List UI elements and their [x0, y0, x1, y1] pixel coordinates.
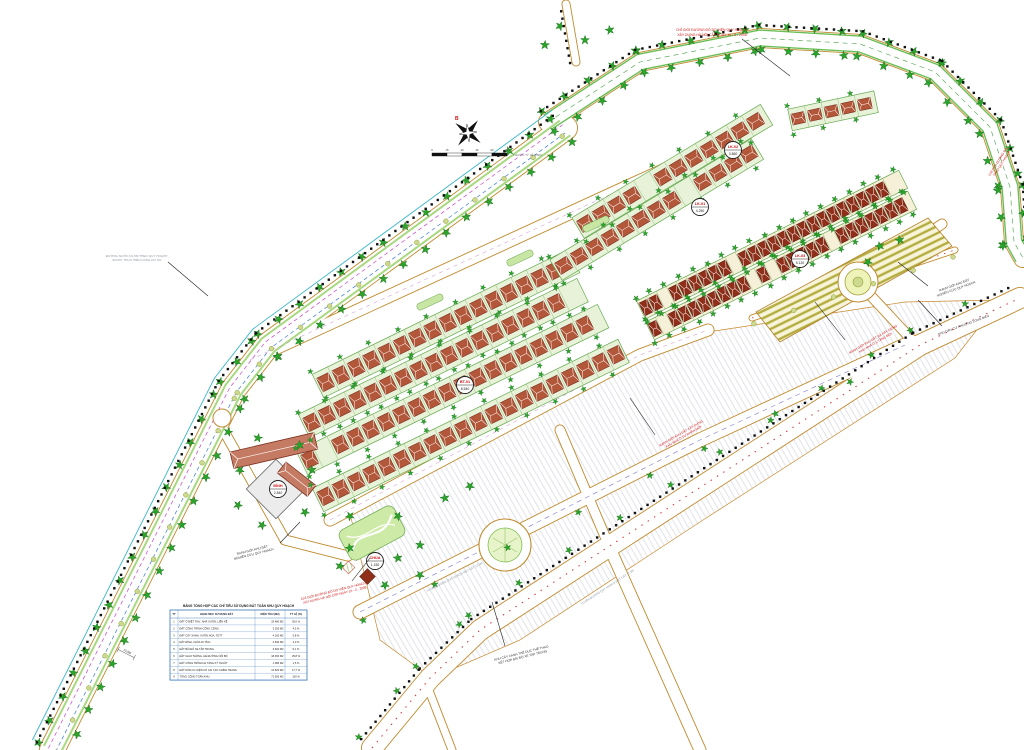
boundary-dot: [825, 28, 827, 30]
boundary-dot: [483, 610, 485, 612]
boundary-dot: [364, 252, 366, 254]
boundary-dot: [76, 661, 78, 663]
boundary-dot: [823, 389, 825, 391]
boundary-dot: [69, 674, 71, 676]
road-surface: [612, 553, 700, 750]
boundary-dot: [157, 500, 159, 502]
boundary-dot: [672, 487, 674, 489]
tree-icon: [718, 251, 725, 258]
legend-cell: 17,7 %: [292, 668, 301, 672]
boundary-dot: [1007, 287, 1009, 289]
annotation-study-boundary-right: RANH GIỚI KHU ĐẤT NGHIÊN CỨU QUY HOẠCH: [934, 275, 976, 298]
tree-icon: [232, 499, 244, 511]
boundary-dot: [810, 398, 812, 400]
legend-cell: 1.080 M2: [273, 661, 284, 665]
boundary-dot: [273, 318, 275, 320]
block-code: BT-01: [460, 380, 470, 384]
housing-strip: [788, 91, 879, 131]
boundary-dot: [760, 430, 762, 432]
boundary-dot: [451, 636, 453, 638]
shrub-icon: [911, 268, 916, 273]
boundary-dot: [966, 306, 968, 308]
boundary-dot: [245, 344, 247, 346]
shrub-icon: [327, 304, 332, 309]
boundary-dot: [994, 113, 996, 115]
shrub-icon: [502, 176, 507, 181]
boundary-dot: [431, 203, 433, 205]
boundary-dot: [766, 426, 768, 428]
boundary-dot: [521, 137, 523, 139]
tree-icon: [365, 453, 372, 460]
boundary-dot: [946, 65, 948, 67]
svg-text:RANH GIỚI KHU ĐẤT NGHI: RANH GIỚI KHU ĐẤT NGHIÊN CỨU QUY HOẠCH: [934, 275, 976, 298]
boundary-dot: [890, 41, 892, 43]
boundary-dot: [566, 47, 568, 49]
block-stamp: BT-018.640: [457, 377, 474, 394]
boundary-dot: [1002, 126, 1004, 128]
boundary-dot: [110, 594, 112, 596]
boundary-dot: [479, 168, 481, 170]
boundary-dot: [772, 422, 774, 424]
boundary-dot: [467, 177, 469, 179]
shrub-icon: [86, 686, 91, 691]
legend-cell: 12.620 M2: [271, 668, 284, 672]
boundary-dot: [810, 27, 812, 29]
boundary-dot: [443, 194, 445, 196]
boundary-dot: [560, 10, 562, 12]
legend-cell: 5,1 %: [293, 647, 300, 651]
boundary-dot: [835, 381, 837, 383]
block-code: CHÙA: [370, 555, 381, 560]
boundary-dot: [590, 77, 592, 79]
block-stamp: ĐÌNH2.840: [270, 481, 287, 498]
boundary-dot: [728, 451, 730, 453]
boundary-dot: [370, 726, 372, 728]
boundary-dot: [384, 709, 386, 711]
legend-cell: 3.250 M2: [273, 626, 284, 630]
boundary-dot: [227, 368, 229, 370]
tree-icon: [336, 561, 345, 570]
boundary-dot: [360, 738, 362, 740]
boundary-dot: [780, 25, 782, 27]
legend-cell: 3.620 M2: [273, 647, 284, 651]
boundary-dot: [147, 520, 149, 522]
boundary-dot: [848, 29, 850, 31]
shrub-icon: [232, 396, 237, 401]
tree-icon: [820, 124, 826, 131]
boundary-dot: [123, 567, 125, 569]
legend-cell: 4.160 M2: [273, 633, 284, 637]
boundary-dot: [722, 455, 724, 457]
boundary-dot: [788, 26, 790, 28]
tree-icon: [746, 237, 753, 244]
boundary-dot: [394, 230, 396, 232]
boundary-dot: [569, 62, 571, 64]
boundary-dot: [79, 654, 81, 656]
pagoda-yard: [342, 561, 355, 574]
boundary-dot: [840, 29, 842, 31]
shrub-icon: [103, 653, 108, 658]
shrub-icon: [791, 308, 796, 313]
boundary-dot: [533, 128, 535, 130]
boundary-dot: [833, 28, 835, 30]
block-area: 2.840: [274, 491, 283, 495]
boundary-dot: [365, 732, 367, 734]
boundary-dot: [73, 667, 75, 669]
boundary-dot: [848, 373, 850, 375]
scale-label: 45: [475, 148, 479, 152]
boundary-dot: [137, 540, 139, 542]
shrub-icon: [167, 525, 172, 530]
boundary-dot: [697, 471, 699, 473]
boundary-dot: [621, 520, 623, 522]
boundary-dot: [489, 606, 491, 608]
boundary-dot: [352, 261, 354, 263]
boundary-dot: [413, 674, 415, 676]
boundary-dot: [634, 49, 636, 51]
boundary-dot: [194, 426, 196, 428]
boundary-dot: [346, 265, 348, 267]
boundary-dot: [758, 24, 760, 26]
boundary-dot: [596, 536, 598, 538]
boundary-dot: [370, 247, 372, 249]
boundary-dot: [461, 181, 463, 183]
tree-icon: [508, 270, 514, 276]
tree-icon: [581, 35, 590, 44]
boundary-dot: [398, 692, 400, 694]
shrub-icon: [200, 460, 205, 465]
boundary-dot: [440, 647, 442, 649]
boundary-dot: [603, 69, 605, 71]
roundabout-main: [479, 519, 531, 571]
boundary-dot: [130, 554, 132, 556]
boundary-dot: [973, 303, 975, 305]
road-dimension: 13,5M: [117, 646, 136, 661]
boundary-dot: [678, 483, 680, 485]
boundary-dot: [231, 362, 233, 364]
boundary-dot: [897, 43, 899, 45]
boundary-dot: [495, 602, 497, 604]
boundary-dot: [100, 614, 102, 616]
boundary-dot: [207, 399, 209, 401]
boundary-dot: [191, 433, 193, 435]
boundary-dot: [388, 234, 390, 236]
tree-icon: [253, 433, 263, 443]
boundary-dot: [527, 581, 529, 583]
boundary-dot: [160, 493, 162, 495]
boundary-dot: [716, 459, 718, 461]
boundary-dot: [408, 680, 410, 682]
boundary-dot: [133, 547, 135, 549]
boundary-dot: [539, 124, 541, 126]
boundary-dot: [437, 199, 439, 201]
boundary-dot: [412, 216, 414, 218]
boundary-dot: [376, 243, 378, 245]
boundary-dot: [841, 377, 843, 379]
boundary-dot: [912, 332, 914, 334]
boundary-dot: [967, 86, 969, 88]
shrub-icon: [831, 295, 836, 300]
boundary-dot: [641, 47, 643, 49]
boundary-dot: [785, 414, 787, 416]
boundary-dot: [602, 532, 604, 534]
boundary-dot: [222, 374, 224, 376]
boundary-dot: [791, 410, 793, 412]
boundary-dot: [90, 634, 92, 636]
boundary-dot: [96, 621, 98, 623]
boundary-dot: [983, 102, 985, 104]
boundary-dot: [164, 487, 166, 489]
boundary-dot: [987, 296, 989, 298]
boundary-dot: [939, 59, 941, 61]
boundary-dot: [297, 301, 299, 303]
boundary-dot: [690, 475, 692, 477]
boundary-dot: [456, 631, 458, 633]
boundary-dot: [334, 274, 336, 276]
boundary-dot: [646, 504, 648, 506]
boundary-dot: [328, 278, 330, 280]
boundary-dot: [565, 40, 567, 42]
tree-icon: [539, 256, 545, 262]
shrub-icon: [70, 718, 75, 723]
boundary-dot: [829, 385, 831, 387]
median-green: [416, 293, 444, 311]
shrub-icon: [298, 325, 303, 330]
shrub-icon: [560, 134, 565, 139]
boundary-dot: [665, 491, 667, 493]
boundary-dot: [615, 61, 617, 63]
boundary-dot: [621, 57, 623, 59]
boundary-dot: [563, 25, 565, 27]
boundary-dot: [66, 681, 68, 683]
tree-icon: [897, 219, 903, 225]
block-area: 4.250: [696, 209, 705, 213]
boundary-dot: [911, 49, 913, 51]
scale-label: 15: [445, 148, 449, 152]
boundary-dot: [303, 296, 305, 298]
block-stamp: CHÙA1.150: [367, 553, 384, 570]
boundary-dot: [946, 316, 948, 318]
boundary-dot: [649, 46, 651, 48]
boundary-dot: [904, 46, 906, 48]
shrub-icon: [444, 219, 449, 224]
boundary-dot: [559, 98, 561, 100]
boundary-dot: [904, 336, 906, 338]
boundary-dot: [546, 106, 548, 108]
shrub-icon: [871, 281, 876, 286]
boundary-dot: [584, 81, 586, 83]
shrub-icon: [356, 282, 361, 287]
boundary-dot: [1009, 147, 1011, 149]
tree-icon: [790, 131, 798, 139]
boundary-dot: [869, 33, 871, 35]
boundary-dot: [941, 60, 943, 62]
boundary-dot: [773, 25, 775, 27]
boundary-dot: [867, 361, 869, 363]
legend-cell: 71.500 M2: [271, 675, 284, 679]
tree-icon: [731, 244, 739, 251]
boundary-dot: [925, 54, 927, 56]
shrub-icon: [414, 240, 419, 245]
block-stamp: LK-035.120: [792, 251, 809, 268]
boundary-dot: [883, 38, 885, 40]
svg-text:RANH GIỚI KHU ĐẤT NGHI: RANH GIỚI KHU ĐẤT NGHIÊN CỨU QUY HOẠCH: [232, 542, 274, 561]
annotation-red-line-bottom: CHỈ GIỚI ĐƯỜNG ĐỎ DO VIỆN QUY HOẠCH XÂY …: [300, 580, 368, 605]
boundary-dot: [685, 38, 687, 40]
scale-label: 75m: [504, 148, 510, 152]
boundary-dot: [892, 345, 894, 347]
boundary-dot: [419, 667, 421, 669]
boundary-dot: [615, 524, 617, 526]
block-stamp: LK-023.860: [725, 142, 742, 159]
boundary-dot: [291, 305, 293, 307]
boundary-dot: [1014, 162, 1016, 164]
boundary-dot: [49, 714, 51, 716]
boundary-dot: [424, 208, 426, 210]
tree-icon: [604, 24, 616, 36]
boundary-dot: [653, 500, 655, 502]
boundary-dot: [116, 580, 118, 582]
tree-icon: [540, 40, 551, 51]
boundary-dot: [540, 110, 542, 112]
legend-cell: 4,0 %: [293, 640, 300, 644]
boundary-dot: [703, 467, 705, 469]
boundary-dot: [568, 54, 570, 56]
svg-text:ĐƯỜNG NƯỚC D1,5M THEO QUY HOẠC: ĐƯỜNG NƯỚC D1,5M THEO QUY HOẠCH ĐƯỢC THỰ…: [106, 253, 169, 262]
boundary-dot: [309, 292, 311, 294]
boundary-dot: [140, 533, 142, 535]
boundary-dot: [379, 715, 381, 717]
boundary-dot: [709, 463, 711, 465]
boundary-dot: [93, 627, 95, 629]
boundary-dot: [418, 212, 420, 214]
boundary-dot: [211, 393, 213, 395]
shrub-icon: [235, 390, 240, 395]
road-surface: [428, 688, 452, 750]
legend-cell: 2.840 M2: [273, 640, 284, 644]
boundary-dot: [204, 406, 206, 408]
boundary-dot: [1019, 176, 1021, 178]
boundary-dot: [167, 480, 169, 482]
scale-label: 60: [490, 148, 494, 152]
boundary-dot: [1007, 140, 1009, 142]
boundary-dot: [779, 418, 781, 420]
tree-icon: [365, 446, 371, 452]
boundary-dot: [187, 440, 189, 442]
shrub-icon: [216, 428, 221, 433]
legend-cell: 18.450 M2: [271, 654, 284, 658]
boundary-dot: [816, 394, 818, 396]
block-area: 1.150: [371, 563, 380, 567]
boundary-dot: [962, 81, 964, 83]
boundary-dot: [552, 102, 554, 104]
site-plan-canvas: LK-014.250LK-023.860LK-035.120BT-018.640…: [0, 0, 1024, 750]
boundary-dot: [973, 92, 975, 94]
tree-icon: [860, 180, 867, 187]
boundary-dot: [374, 721, 376, 723]
boundary-dot: [693, 37, 695, 39]
boundary-dot: [170, 473, 172, 475]
boundary-dot: [919, 328, 921, 330]
boundary-dot: [571, 89, 573, 91]
boundary-dot: [795, 26, 797, 28]
boundary-dot: [120, 574, 122, 576]
boundary-dot: [279, 314, 281, 316]
boundary-dot: [747, 438, 749, 440]
boundary-dot: [36, 741, 38, 743]
tree-icon: [299, 506, 311, 518]
legend-table: BẢNG TỔNG HỢP CÁC CHỈ TIÊU SỬ DỤNG ĐẤT T…: [170, 603, 307, 680]
annotation-water-line: ĐƯỜNG NƯỚC D1,5M THEO QUY HOẠCH ĐƯỢC THỰ…: [106, 253, 169, 262]
boundary-dot: [565, 94, 567, 96]
boundary-dot: [403, 686, 405, 688]
boundary-dot: [918, 51, 920, 53]
boundary-dot: [181, 453, 183, 455]
boundary-dot: [873, 357, 875, 359]
median-green: [506, 249, 534, 267]
legend-cell: 25,8 %: [292, 654, 301, 658]
boundary-dot: [424, 662, 426, 664]
boundary-dot: [429, 657, 431, 659]
boundary-dot: [358, 256, 360, 258]
compass-north-label: B: [455, 116, 459, 122]
annotation-red-line-top: CHỈ GIỚI ĐƯỜNG ĐỎ DO VIỆN QUY HOẠCH XÂY …: [676, 27, 748, 37]
boundary-dot: [577, 85, 579, 87]
boundary-dot: [267, 323, 269, 325]
scale-label: 0: [431, 148, 433, 152]
boundary-dot: [590, 540, 592, 542]
shrub-icon: [269, 346, 274, 351]
boundary-dot: [656, 44, 658, 46]
boundary-dot: [214, 386, 216, 388]
boundary-dot: [533, 577, 535, 579]
boundary-dot: [932, 56, 934, 58]
boundary-dot: [174, 466, 176, 468]
roundabout-west: [213, 409, 231, 427]
scale-caption: THƯỚC TỶ LỆ 1/500: [513, 152, 542, 157]
shrub-icon: [119, 621, 124, 626]
boundary-dot: [804, 402, 806, 404]
boundary-dot: [63, 688, 65, 690]
scale-segment: [492, 153, 507, 156]
boundary-dot: [609, 65, 611, 67]
boundary-dot: [39, 734, 41, 736]
boundary-dot: [59, 694, 61, 696]
boundary-dot: [435, 652, 437, 654]
boundary-dot: [546, 569, 548, 571]
boundary-dot: [240, 350, 242, 352]
shrub-icon: [951, 255, 956, 260]
boundary-dot: [753, 434, 755, 436]
block-code: ĐÌNH: [273, 483, 283, 488]
shrub-icon: [385, 261, 390, 266]
block-area: 3.860: [729, 152, 738, 156]
boundary-dot: [103, 607, 105, 609]
boundary-dot: [797, 406, 799, 408]
boundary-dot: [855, 30, 857, 32]
boundary-dot: [552, 115, 554, 117]
boundary-dot: [577, 549, 579, 551]
boundary-dot: [315, 287, 317, 289]
north-compass: B: [446, 111, 491, 156]
boundary-dot: [539, 573, 541, 575]
boundary-dot: [467, 621, 469, 623]
boundary-dot: [217, 380, 219, 382]
legend-cell: 100 %: [292, 675, 300, 679]
boundary-dot: [236, 356, 238, 358]
boundary-dot: [491, 159, 493, 161]
shrub-icon: [135, 589, 140, 594]
